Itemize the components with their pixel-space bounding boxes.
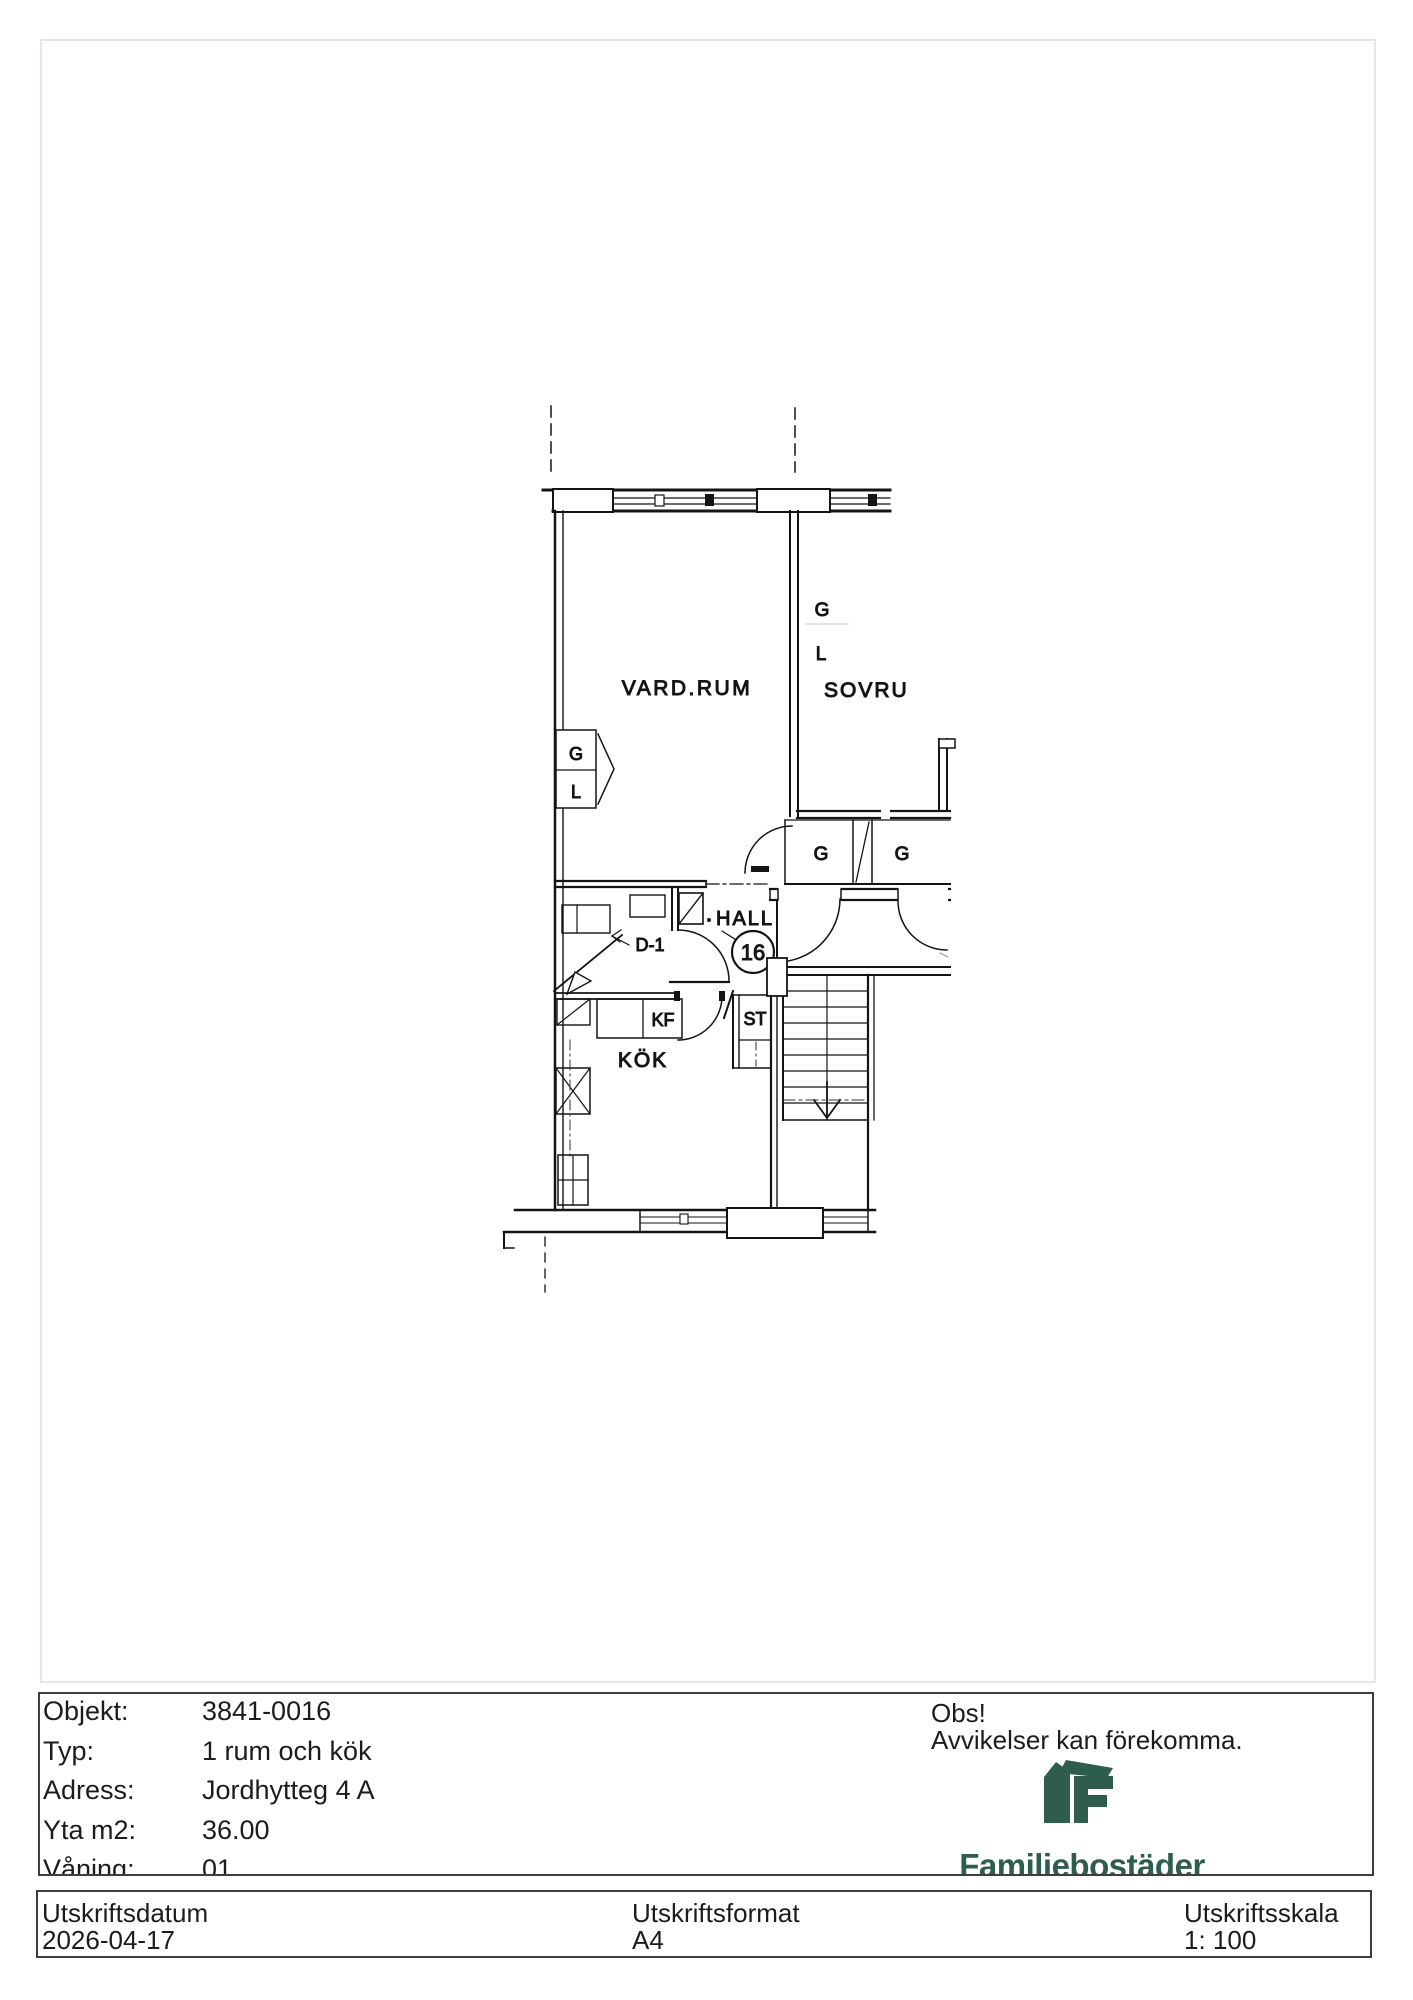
typ-value: 1 rum och kök bbox=[202, 1737, 372, 1777]
storage-closet: ST bbox=[724, 991, 771, 1068]
floor-plan-drawing: G L G L SOVRU VARD.RUM bbox=[495, 395, 965, 1300]
table-row: Adress: Jordhytteg 4 A bbox=[43, 1776, 375, 1816]
room-label-kitchen: KÖK bbox=[618, 1049, 668, 1072]
print-format-label: Utskriftsformat bbox=[632, 1900, 800, 1927]
adress-label: Adress: bbox=[43, 1776, 202, 1816]
familjebostader-logo-icon bbox=[1043, 1759, 1115, 1825]
landing-closets: G G bbox=[745, 820, 950, 884]
typ-label: Typ: bbox=[43, 1737, 202, 1777]
objekt-label: Objekt: bbox=[43, 1697, 202, 1737]
stair-landing bbox=[770, 887, 950, 975]
notice-title: Obs! bbox=[931, 1700, 1243, 1727]
table-row: Typ: 1 rum och kök bbox=[43, 1737, 375, 1777]
notice-text: Avvikelser kan förekomma. bbox=[931, 1727, 1243, 1754]
bedroom-labels: G L SOVRU bbox=[806, 600, 909, 702]
footer-col-date: Utskriftsdatum 2026-04-17 bbox=[42, 1900, 208, 1954]
print-format-value: A4 bbox=[632, 1927, 800, 1954]
hall-labels: HALL 16 bbox=[707, 908, 774, 973]
apartment-info-box: Objekt: 3841-0016 Typ: 1 rum och kök Adr… bbox=[38, 1692, 1374, 1876]
footer-col-format: Utskriftsformat A4 bbox=[632, 1900, 800, 1954]
unit-number: 16 bbox=[741, 940, 765, 965]
fridge-freezer-label: KF bbox=[651, 1010, 674, 1030]
hall-wall bbox=[555, 881, 768, 982]
print-info-footer: Utskriftsdatum 2026-04-17 Utskriftsforma… bbox=[36, 1890, 1372, 1958]
bedroom-g-label: G bbox=[815, 600, 830, 621]
bedroom-bottom-wall bbox=[797, 739, 955, 821]
room-label-living: VARD.RUM bbox=[622, 677, 752, 700]
document-page: G L G L SOVRU VARD.RUM bbox=[0, 0, 1413, 2000]
footer-col-scale: Utskriftsskala 1: 100 bbox=[1184, 1900, 1339, 1954]
living-bedroom-wall bbox=[790, 511, 798, 816]
yta-label: Yta m2: bbox=[43, 1816, 202, 1856]
print-scale-label: Utskriftsskala bbox=[1184, 1900, 1339, 1927]
vaning-label: Våning: bbox=[43, 1855, 202, 1876]
notice-block: Obs! Avvikelser kan förekomma. bbox=[931, 1700, 1243, 1754]
adress-value: Jordhytteg 4 A bbox=[202, 1776, 375, 1816]
apartment-info-table: Objekt: 3841-0016 Typ: 1 rum och kök Adr… bbox=[43, 1697, 375, 1876]
staircase bbox=[783, 975, 874, 1210]
vaning-value: 01 bbox=[202, 1855, 232, 1876]
objekt-value: 3841-0016 bbox=[202, 1697, 331, 1737]
wardrobe-l-label: L bbox=[571, 782, 581, 802]
bottom-exterior-wall bbox=[504, 1208, 875, 1248]
print-scale-value: 1: 100 bbox=[1184, 1927, 1339, 1954]
door-d1-label: D-1 bbox=[635, 935, 664, 955]
yta-value: 36.00 bbox=[202, 1816, 270, 1856]
bedroom-l-label: L bbox=[816, 644, 827, 665]
brand-wordmark: Familjebostäder bbox=[959, 1847, 1205, 1876]
top-exterior-wall bbox=[543, 489, 890, 512]
room-label-bedroom: SOVRU bbox=[824, 679, 909, 702]
closet-g-left: G bbox=[814, 844, 829, 865]
room-label-hall: HALL bbox=[716, 908, 774, 930]
print-date-label: Utskriftsdatum bbox=[42, 1900, 208, 1927]
wardrobe-box: G L bbox=[556, 730, 614, 808]
print-date-value: 2026-04-17 bbox=[42, 1927, 208, 1954]
table-row: Våning: 01 bbox=[43, 1855, 375, 1876]
wardrobe-g-label: G bbox=[569, 744, 583, 764]
storage-label: ST bbox=[743, 1009, 766, 1029]
section-cut-lines bbox=[545, 406, 795, 1292]
table-row: Objekt: 3841-0016 bbox=[43, 1697, 375, 1737]
table-row: Yta m2: 36.00 bbox=[43, 1816, 375, 1856]
door-d1: D-1 bbox=[554, 930, 665, 994]
kitchen: KF KÖK bbox=[555, 991, 725, 1205]
closet-g-right: G bbox=[895, 844, 910, 865]
